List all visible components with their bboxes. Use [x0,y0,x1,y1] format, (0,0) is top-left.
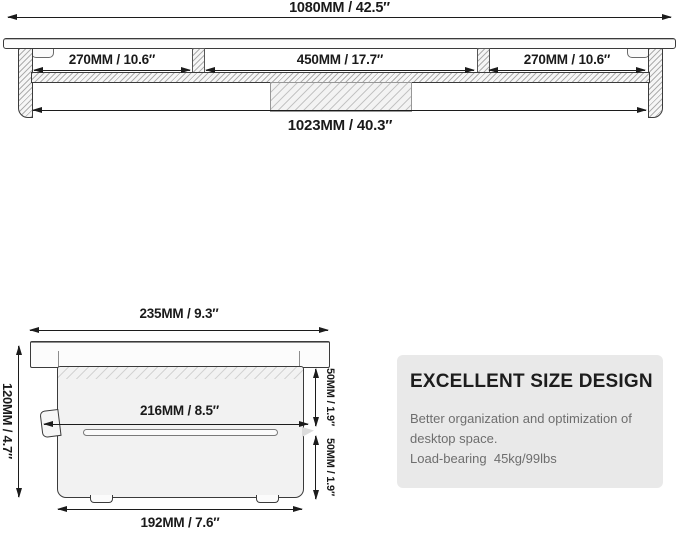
front-overall-width-label: 1080MM / 42.5″ [0,1,679,17]
front-overall-width-arrow [8,17,671,18]
side-left-foot [90,495,113,503]
front-right-leg [648,48,663,118]
front-right-section-arrow [489,70,645,71]
info-card-title: EXCELLENT SIZE DESIGN [410,371,655,393]
product-dimension-diagram: 1080MM / 42.5″ 270MM / 10.6″ 450MM / 17.… [0,0,679,533]
front-top-board [3,38,676,49]
side-middle-depth-arrow [44,424,308,425]
side-height-arrow [18,346,19,497]
side-lower-gap-label: 50MM / 1.9″ [324,434,336,500]
front-left-leg [18,48,33,118]
front-left-section-label: 270MM / 10.6″ [34,53,190,68]
side-lower-gap-arrow [315,436,316,499]
side-top-depth-arrow [30,330,328,331]
side-base-depth-arrow [58,509,302,510]
side-base-depth-label: 192MM / 7.6″ [58,516,302,531]
info-card-line-3: Load-bearing 45kg/99lbs [410,449,655,469]
info-card-line-2: desktop space. [410,429,655,449]
side-top-board [30,341,330,368]
side-board-left-joint-line [58,351,59,367]
side-board-right-joint-line [299,351,300,367]
info-card-body: Better organization and optimization of … [410,409,655,469]
front-inner-width-arrow [33,110,646,111]
front-center-section-label: 450MM / 17.7″ [206,53,474,68]
front-inner-width-label: 1023MM / 40.3″ [170,118,510,135]
side-height-label: 120MM / 4.7″ [0,366,14,476]
side-top-depth-label: 235MM / 9.3″ [30,307,328,322]
front-right-section-label: 270MM / 10.6″ [489,53,645,68]
side-body-top-hatch [58,367,303,379]
side-base-body [57,366,304,498]
info-card: EXCELLENT SIZE DESIGN Better organizatio… [397,355,663,488]
info-card-line-1: Better organization and optimization of [410,409,655,429]
side-middle-depth-label: 216MM / 8.5″ [57,404,302,419]
side-drawer-groove [83,429,278,436]
side-right-foot [256,495,279,503]
side-upper-gap-label: 50MM / 1.9″ [324,364,336,430]
front-center-section-arrow [206,70,474,71]
front-center-support [270,82,412,112]
front-left-section-arrow [34,70,190,71]
side-upper-gap-arrow [315,369,316,426]
